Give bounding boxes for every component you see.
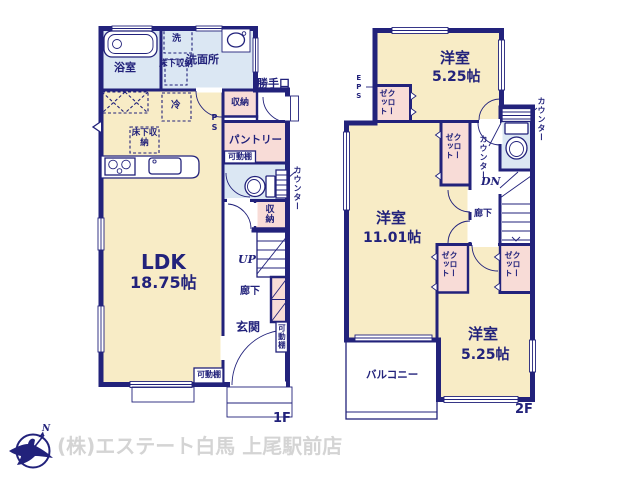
up-label: UP [238, 254, 256, 266]
toilet1-counter [276, 170, 287, 198]
pipe-space-label: PS [209, 113, 218, 133]
movable-shelf-b-label: 可動棚 [277, 324, 285, 350]
fridge-label: 冷 [171, 101, 181, 112]
room-bottom-name-label: 洋室 [468, 326, 498, 343]
storage-a-label: 収納 [231, 98, 249, 108]
floorplan-page: 浴室 洗 洗面所 床下収納 床下収納 冷 勝手口 収納 PS パントリー 可動棚… [0, 0, 640, 480]
movable-shelf-c-label: 可動棚 [197, 371, 221, 380]
toilet-2f-icon [502, 109, 531, 160]
counter-1f-label: カウンター [292, 166, 301, 211]
terrace-step [132, 387, 194, 402]
north-label: N [42, 424, 50, 434]
room-mid-floor-lower [346, 245, 437, 338]
backdoor-step [291, 96, 299, 121]
storage-b-label: 収納 [263, 205, 277, 225]
kitchen-counter-icon [101, 156, 199, 178]
backdoor-label: 勝手口 [257, 78, 290, 90]
compass-icon [9, 432, 53, 468]
dn-label: DN [481, 176, 501, 188]
entrance-label: 玄関 [236, 321, 260, 334]
closet-top-label: クローゼット [379, 89, 395, 121]
entrance-porch [132, 387, 292, 417]
bathtub-icon [104, 31, 157, 57]
bay-window-icon [93, 122, 101, 133]
closet-right-label: クローゼット [504, 251, 520, 283]
underfloor-storage-b-label: 床下収納 [129, 129, 160, 148]
floorplan-drawing [0, 0, 640, 480]
ldk-size-label: 18.75帖 [130, 274, 197, 292]
room-top-name-label: 洋室 [440, 50, 470, 67]
ldk-floor [101, 90, 223, 385]
movable-shelf-a-label: 可動棚 [228, 153, 252, 162]
washer-label: 洗 [172, 34, 181, 44]
balcony-label: バルコニー [366, 370, 418, 382]
hallway-1f-label: 廊下 [240, 286, 260, 297]
hallway-2f-label: 廊下 [474, 209, 492, 219]
room-top-size-label: 5.25帖 [432, 70, 481, 86]
underfloor-storage-a-label: 床下収納 [159, 60, 193, 70]
floor1-label: 1F [273, 412, 291, 427]
eps-label: EPS [354, 74, 362, 101]
company-name: (株)エステート白馬 上尾駅前店 [57, 435, 342, 457]
counter-2f-left-label: カウンター [478, 135, 487, 180]
floor2-label: 2F [515, 403, 533, 418]
stairs-2f-icon [500, 172, 531, 241]
closet-mid-lower-label: クローゼット [441, 251, 457, 283]
counter-2f-right-label: カウンター [536, 97, 545, 142]
pantry-label: パントリー [229, 135, 282, 147]
room-mid-size-label: 11.01帖 [363, 231, 421, 247]
washbasin-icon [222, 29, 250, 52]
ldk-name-label: LDK [141, 251, 186, 273]
toilet2-counter [502, 109, 531, 122]
room-bottom-size-label: 5.25帖 [461, 348, 510, 364]
closet-mid-upper-label: クローゼット [445, 133, 461, 165]
bath-label: 浴室 [114, 62, 136, 74]
room-mid-name-label: 洋室 [376, 210, 406, 227]
